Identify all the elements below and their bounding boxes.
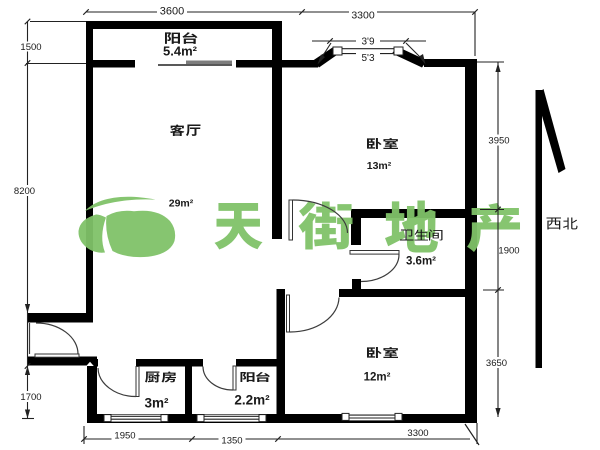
svg-text:3300: 3300 <box>407 428 428 439</box>
svg-text:3m²: 3m² <box>144 395 169 410</box>
svg-text:8200: 8200 <box>14 186 35 197</box>
svg-text:5'3: 5'3 <box>361 53 374 64</box>
svg-text:3600: 3600 <box>160 6 184 18</box>
svg-text:1350: 1350 <box>221 435 242 446</box>
svg-text:3'9: 3'9 <box>361 37 374 48</box>
svg-text:2.2m²: 2.2m² <box>234 392 270 407</box>
svg-text:3950: 3950 <box>488 135 509 146</box>
svg-text:1700: 1700 <box>20 392 41 403</box>
svg-text:13m²: 13m² <box>367 160 392 172</box>
svg-text:1900: 1900 <box>498 245 519 256</box>
svg-text:12m²: 12m² <box>364 372 391 384</box>
svg-text:3300: 3300 <box>351 9 375 21</box>
svg-text:29m²: 29m² <box>169 197 194 209</box>
svg-text:1950: 1950 <box>114 430 135 441</box>
svg-text:5.4m²: 5.4m² <box>163 44 198 59</box>
svg-text:3650: 3650 <box>486 358 507 369</box>
svg-text:3.6m²: 3.6m² <box>406 256 436 268</box>
svg-text:1500: 1500 <box>20 42 41 53</box>
